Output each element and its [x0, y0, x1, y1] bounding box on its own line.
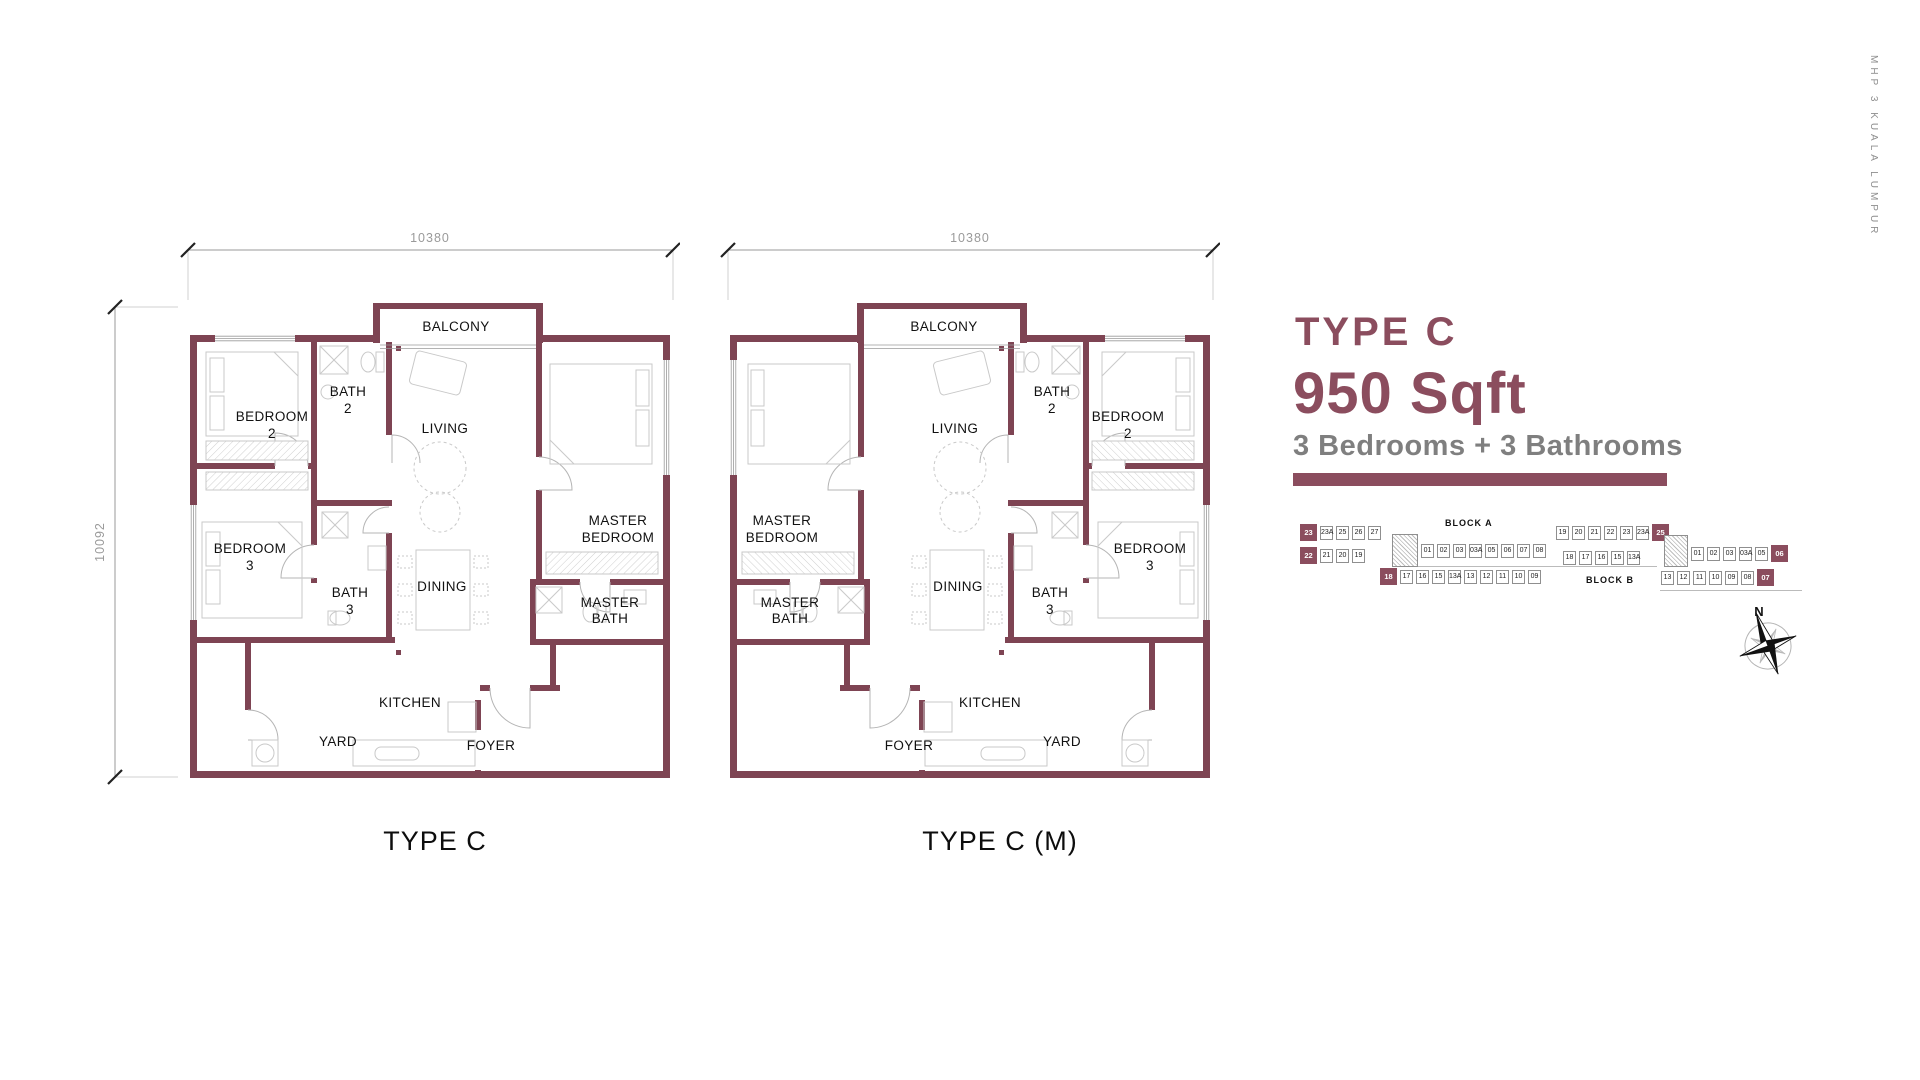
unit-01: 01 — [1421, 544, 1434, 558]
unit-16: 16 — [1416, 570, 1429, 584]
unit-11: 11 — [1693, 571, 1706, 585]
divider-bar — [1293, 473, 1667, 486]
room-label-foyer: FOYER — [885, 738, 934, 753]
room-label-master-bedroom: MASTER — [753, 513, 812, 528]
room-label-bedroom3: BEDROOM — [214, 541, 287, 556]
block-b-wing-bottom-row: 13121110090807 — [1661, 571, 1774, 586]
unit-23: 23 — [1620, 526, 1633, 540]
floorplan-type-c: 10380 10092 BALCONY BEDROOM 2 BATH 2 LIV… — [80, 225, 680, 785]
unit-01: 01 — [1691, 547, 1704, 561]
room-label-balcony: BALCONY — [422, 319, 489, 334]
dimension-top-label: 10380 — [410, 231, 450, 245]
room-label-master-bedroom2: BEDROOM — [746, 530, 819, 545]
room-label-dining: DINING — [417, 579, 467, 594]
unit-19: 19 — [1556, 526, 1569, 540]
room-label-master-bath2: BATH — [772, 611, 809, 626]
room-label-kitchen: KITCHEN — [379, 695, 441, 710]
corridor-line — [1392, 566, 1657, 567]
unit-03A: 03A — [1739, 547, 1752, 561]
unit-02: 02 — [1437, 544, 1450, 558]
block-b-second-row: 1817161513A — [1563, 551, 1640, 565]
room-labels: BALCONY BEDROOM 2 BATH 2 LIVING BEDROOM … — [214, 319, 655, 753]
unit-21: 21 — [1320, 549, 1333, 563]
room-label-yard: YARD — [1043, 734, 1081, 749]
room-label-bedroom3: BEDROOM — [1114, 541, 1187, 556]
block-diagram: BLOCK A BLOCK B 2323A252627 22212019 010… — [1300, 518, 1812, 598]
unit-05: 05 — [1485, 544, 1498, 558]
room-label-kitchen: KITCHEN — [959, 695, 1021, 710]
block-a-label: BLOCK A — [1445, 518, 1493, 528]
unit-03A: 03A — [1469, 544, 1482, 558]
plan-caption: TYPE C — [325, 826, 545, 857]
room-label-master-bath: MASTER — [761, 595, 820, 610]
unit-26: 26 — [1352, 526, 1365, 540]
dimension-left: 10092 — [93, 300, 178, 784]
unit-08: 08 — [1741, 571, 1754, 585]
unit-07: 07 — [1517, 544, 1530, 558]
unit-15: 15 — [1432, 570, 1445, 584]
room-label-bedroom3-num: 3 — [246, 558, 254, 573]
unit-12: 12 — [1480, 570, 1493, 584]
block-a-wing-second-row: 22212019 — [1300, 549, 1365, 564]
dimension-left-label: 10092 — [93, 522, 107, 562]
compass-star — [1727, 602, 1806, 685]
room-label-dining: DINING — [933, 579, 983, 594]
unit-23A: 23A — [1320, 526, 1333, 540]
unit-13A: 13A — [1627, 551, 1640, 565]
unit-13A: 13A — [1448, 570, 1461, 584]
block-a-mid-row: 01020303A05060708 — [1421, 544, 1546, 558]
unit-09: 09 — [1725, 571, 1738, 585]
unit-03: 03 — [1453, 544, 1466, 558]
unit-23A: 23A — [1636, 526, 1649, 540]
room-label-bath2: BATH — [1034, 384, 1071, 399]
room-label-bedroom2-num: 2 — [268, 426, 276, 441]
unit-17: 17 — [1579, 551, 1592, 565]
room-label-living: LIVING — [422, 421, 469, 436]
watermark-text: MHP 3 KUALA LUMPUR — [1868, 55, 1879, 237]
room-label-bath3: BATH — [1032, 585, 1069, 600]
config-text: 3 Bedrooms + 3 Bathrooms — [1293, 430, 1683, 463]
unit-16: 16 — [1595, 551, 1608, 565]
unit-02: 02 — [1707, 547, 1720, 561]
unit-08: 08 — [1533, 544, 1546, 558]
unit-20: 20 — [1336, 549, 1349, 563]
room-label-bath3: BATH — [332, 585, 369, 600]
unit-22: 22 — [1604, 526, 1617, 540]
room-label-bedroom3-num: 3 — [1146, 558, 1154, 573]
unit-13: 13 — [1661, 571, 1674, 585]
room-label-bedroom2: BEDROOM — [1092, 409, 1165, 424]
room-label-bath3-num: 3 — [346, 602, 354, 617]
block-b-label: BLOCK B — [1586, 575, 1634, 585]
room-label-bath2-num: 2 — [1048, 401, 1056, 416]
block-b-top-row: 192021222323A25 — [1556, 526, 1669, 541]
unit-15: 15 — [1611, 551, 1624, 565]
room-label-living: LIVING — [932, 421, 979, 436]
page: 10380 10092 BALCONY BEDROOM 2 BATH 2 LIV… — [0, 0, 1920, 1080]
unit-17: 17 — [1400, 570, 1413, 584]
unit-27: 27 — [1368, 526, 1381, 540]
room-label-bath3-num: 3 — [1046, 602, 1054, 617]
unit-25: 25 — [1336, 526, 1349, 540]
block-a-wing-top-row: 2323A252627 — [1300, 526, 1381, 541]
unit-18: 18 — [1380, 568, 1397, 585]
dimension-top: 10380 — [721, 231, 1220, 300]
unit-09: 09 — [1528, 570, 1541, 584]
unit-10: 10 — [1709, 571, 1722, 585]
floorplan-type-c-m: 10380 BALCONY BEDROOM 2 BATH 2 LIVING BE… — [620, 225, 1220, 785]
unit-20: 20 — [1572, 526, 1585, 540]
unit-03: 03 — [1723, 547, 1736, 561]
block-a-bottom-row: 1817161513A1312111009 — [1380, 570, 1541, 585]
unit-05: 05 — [1755, 547, 1768, 561]
room-label-bath2-num: 2 — [344, 401, 352, 416]
unit-06: 06 — [1501, 544, 1514, 558]
room-label-yard: YARD — [319, 734, 357, 749]
room-label-balcony: BALCONY — [910, 319, 977, 334]
unit-06: 06 — [1771, 545, 1788, 562]
lift-core — [1392, 534, 1418, 567]
unit-19: 19 — [1352, 549, 1365, 563]
type-title: TYPE C — [1295, 310, 1457, 355]
dimension-top-label: 10380 — [950, 231, 990, 245]
room-labels: BALCONY BEDROOM 2 BATH 2 LIVING BEDROOM … — [746, 319, 1187, 753]
room-label-foyer: FOYER — [467, 738, 516, 753]
unit-22: 22 — [1300, 547, 1317, 564]
unit-11: 11 — [1496, 570, 1509, 584]
north-label: N — [1754, 604, 1763, 619]
unit-12: 12 — [1677, 571, 1690, 585]
unit-21: 21 — [1588, 526, 1601, 540]
unit-18: 18 — [1563, 551, 1576, 565]
lift-core — [1664, 535, 1688, 567]
unit-10: 10 — [1512, 570, 1525, 584]
compass-rose: N — [1725, 593, 1825, 698]
unit-07: 07 — [1757, 569, 1774, 586]
unit-23: 23 — [1300, 524, 1317, 541]
room-label-bedroom2-num: 2 — [1124, 426, 1132, 441]
room-label-bath2: BATH — [330, 384, 367, 399]
dimension-top: 10380 — [181, 231, 680, 300]
plan-caption: TYPE C (M) — [890, 826, 1110, 857]
area-text: 950 Sqft — [1293, 360, 1527, 427]
unit-13: 13 — [1464, 570, 1477, 584]
block-b-wing-mid-row: 01020303A0506 — [1691, 547, 1788, 562]
room-label-bedroom2: BEDROOM — [236, 409, 309, 424]
corridor-line — [1660, 590, 1802, 591]
